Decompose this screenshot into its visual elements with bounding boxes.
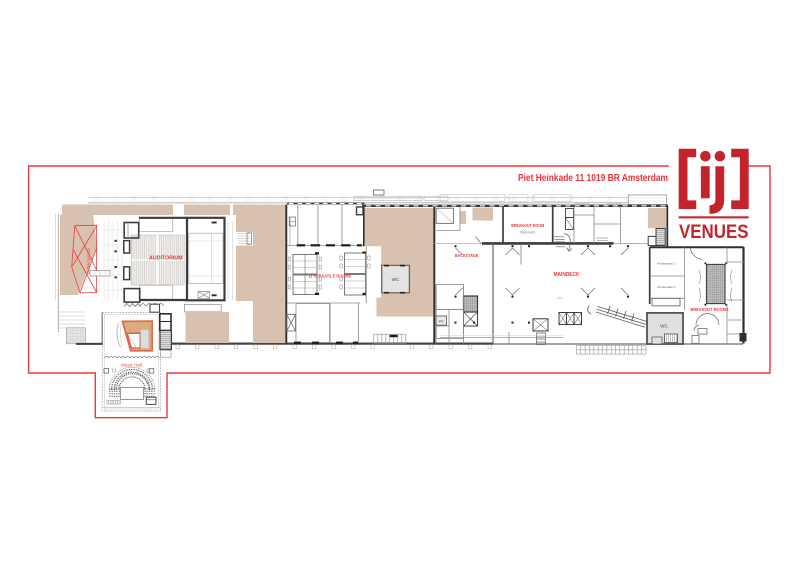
- svg-text:BREAKOUT ROOMS: BREAKOUT ROOMS: [691, 307, 729, 312]
- svg-text:WC: WC: [439, 319, 445, 323]
- svg-text:11 VERSATILE ROOMS: 11 VERSATILE ROOMS: [308, 274, 351, 279]
- svg-text:WC: WC: [660, 324, 668, 329]
- svg-text:BACKSTAGE: BACKSTAGE: [455, 253, 479, 258]
- svg-text:BREAKOUT ROOM: BREAKOUT ROOM: [511, 223, 544, 228]
- svg-text:VENUES: VENUES: [679, 222, 749, 243]
- svg-text:Music Hall: Music Hall: [121, 362, 142, 367]
- svg-text:Piet Heinkade 11 1019 BR Amste: Piet Heinkade 11 1019 BR Amsterdam: [518, 172, 668, 184]
- svg-text:Amsterdam 1: Amsterdam 1: [657, 285, 676, 289]
- svg-text:+0.0: +0.0: [557, 296, 563, 300]
- svg-text:Waterkant: Waterkant: [520, 231, 535, 235]
- svg-text:MAINDECK: MAINDECK: [554, 272, 580, 278]
- svg-text:WC: WC: [392, 277, 400, 282]
- svg-text:Multiple terraces: Multiple terraces: [87, 248, 91, 275]
- svg-text:Amsterdam 1: Amsterdam 1: [657, 262, 676, 266]
- svg-text:AUDITORIUM: AUDITORIUM: [149, 256, 183, 262]
